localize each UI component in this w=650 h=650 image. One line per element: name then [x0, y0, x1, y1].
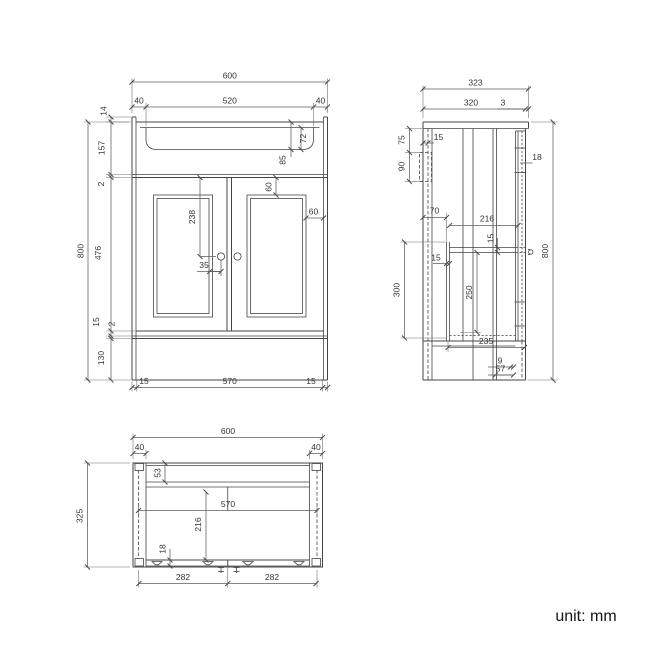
dim-front-base-right: 15 [306, 376, 316, 386]
dim-side-shelf-clearance: 250 [464, 285, 474, 299]
dim-front-bottom-rail: 15 [91, 317, 101, 327]
dim-front-upstand: 14 [99, 106, 109, 116]
door-handle-right [234, 253, 241, 260]
technical-drawing-page: 600 40 520 40 14 157 2 476 15 2 130 800 … [0, 0, 650, 650]
hinge-bottom [515, 302, 527, 326]
dim-side-support-height: 300 [392, 283, 402, 297]
dim-side-support-inset: 15 [431, 253, 441, 263]
dim-side-shelf-depth: 216 [480, 214, 494, 224]
dim-plan-inner-depth: 216 [193, 517, 203, 531]
dim-plan-back-rail: 53 [153, 468, 163, 478]
dim-side-toe-depth: 57 [496, 364, 506, 374]
unit-label: unit: mm [555, 608, 616, 625]
dim-plan-door-right: 282 [265, 572, 279, 582]
dim-front-basin-width: 520 [223, 96, 237, 106]
dim-side-bracket-from-top: 75 [397, 135, 407, 145]
dim-front-panel-inset-top: 60 [264, 182, 274, 192]
dim-front-base-width: 570 [223, 376, 237, 386]
side-section-view: 323 320 3 75 90 15 18 70 216 15 15 300 2… [392, 78, 558, 381]
dim-plan-door-thickness: 18 [158, 544, 168, 554]
dim-side-back-inset: 70 [430, 206, 440, 216]
door-panel-right [247, 195, 306, 317]
dim-front-rim-right: 40 [316, 96, 326, 106]
wall-bracket-hidden [420, 153, 432, 182]
dim-side-front-lip: 3 [501, 98, 506, 108]
plan-dimension-labels: 600 40 40 53 570 216 18 282 282 325 [75, 426, 321, 582]
dim-plan-overall-width: 600 [221, 426, 235, 436]
dim-side-base-depth: 235 [479, 336, 493, 346]
vanity-unit-drawing: 600 40 520 40 14 157 2 476 15 2 130 800 … [0, 0, 650, 650]
dim-front-handle-offset: 35 [199, 260, 209, 270]
plan-dimensions [84, 434, 323, 588]
dim-front-panel-inset-side: 60 [309, 207, 319, 217]
front-elevation-view: 600 40 520 40 14 157 2 476 15 2 130 800 … [76, 71, 328, 392]
dim-front-overall-height: 800 [76, 244, 86, 258]
door-panel-left [154, 195, 213, 317]
dim-front-overall-width: 600 [223, 71, 237, 81]
dim-side-door-thickness: 18 [532, 152, 542, 162]
dim-front-basin-depth-inner: 72 [298, 134, 308, 144]
dim-front-counter-zone: 157 [97, 141, 107, 155]
dim-front-plinth: 130 [96, 351, 106, 365]
dim-plan-inner-width: 570 [221, 499, 235, 509]
cabinet-doors [154, 178, 307, 332]
dim-side-bracket-height: 90 [397, 162, 407, 172]
dim-side-shelf-thickness: 15 [486, 234, 496, 244]
dim-front-rim-left: 40 [134, 96, 144, 106]
dim-side-bracket-inset: 15 [434, 132, 444, 142]
front-dimensions [84, 79, 328, 392]
dim-front-basin-depth-outer: 85 [278, 155, 288, 165]
door-handle-left [217, 253, 224, 260]
hinge-top [515, 148, 527, 173]
front-carcass-outline [132, 117, 328, 380]
plan-view: 600 40 40 53 570 216 18 282 282 325 [75, 426, 323, 588]
side-carcass-outline [423, 122, 529, 380]
basin-bowl [146, 128, 314, 150]
side-knob [528, 250, 533, 255]
dim-side-top-depth: 320 [464, 98, 478, 108]
dim-side-overall-depth: 323 [468, 78, 482, 88]
dim-plan-side-right: 40 [311, 442, 321, 452]
dim-front-handle-from-top: 238 [187, 210, 197, 224]
side-door-slab [515, 131, 534, 341]
dim-front-gap-bottom: 2 [107, 321, 117, 326]
dim-plan-door-left: 282 [176, 572, 190, 582]
dim-plan-side-left: 40 [135, 442, 145, 452]
dim-side-overall-height: 800 [540, 244, 550, 258]
dim-front-door-height: 476 [93, 246, 103, 260]
dim-plan-overall-depth: 325 [75, 509, 85, 523]
dim-front-base-left: 15 [139, 376, 149, 386]
dim-front-gap-top: 2 [96, 181, 106, 186]
